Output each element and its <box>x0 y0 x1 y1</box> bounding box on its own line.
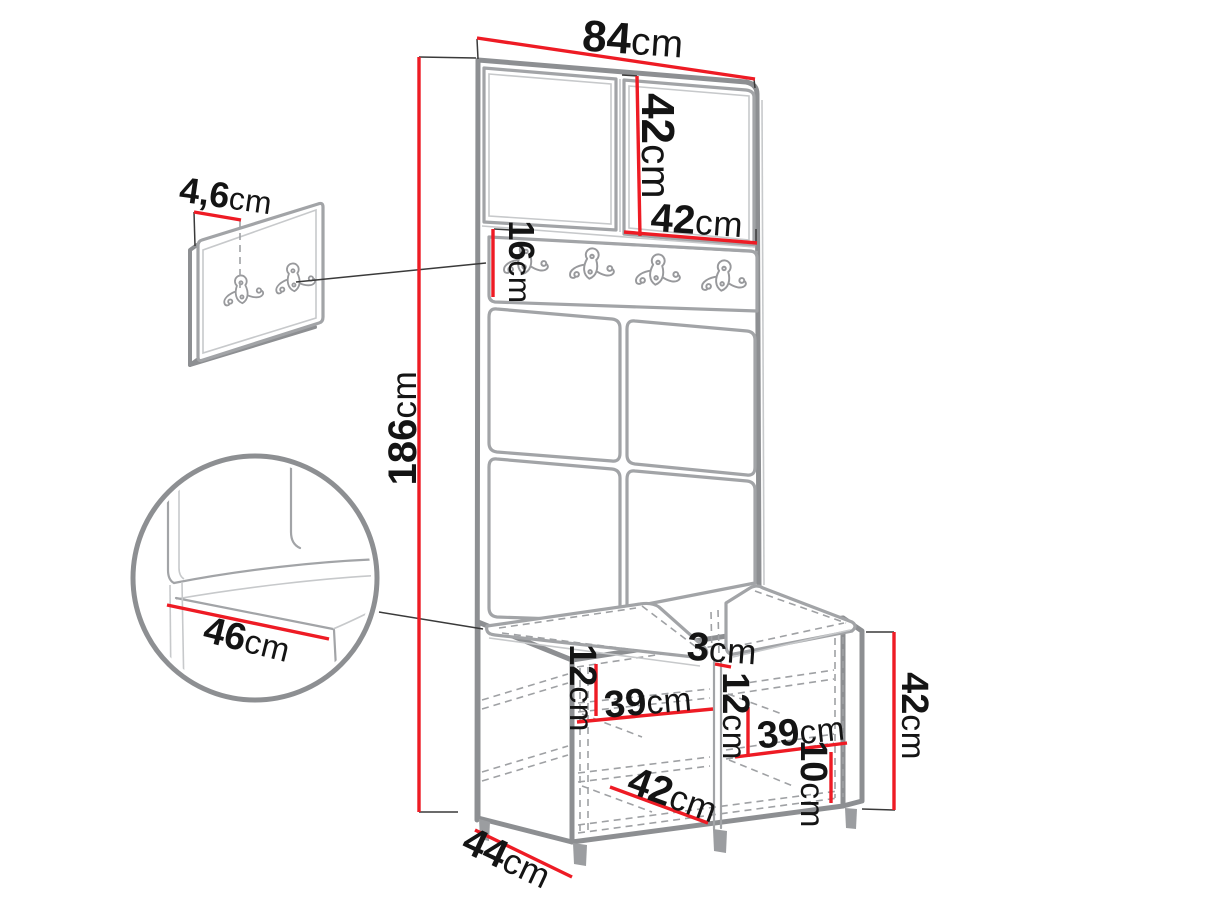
dim-total-height: 186cm <box>383 371 423 486</box>
dim-hook-rail-height: 16cm <box>503 220 539 303</box>
diagram-canvas: 84cm 42cm 42cm 4,6cm 16cm 186cm 46cm 3cm… <box>0 0 1214 911</box>
dim-right-compartment-height: 12cm <box>716 672 754 760</box>
dim-top-cabinet-height: 42cm <box>635 93 681 199</box>
seat-corner-detail-circle <box>133 456 386 706</box>
dim-left-compartment-height: 12cm <box>563 644 601 732</box>
dim-bench-height: 42cm <box>895 672 933 760</box>
dim-top-cabinet-width: 42cm <box>650 198 745 244</box>
furniture-line-drawing <box>0 0 1214 911</box>
wall-panel-detail <box>190 203 323 365</box>
dim-left-compartment-width: 39cm <box>603 679 694 725</box>
upholstered-panels <box>489 309 755 621</box>
dim-bottom-compartment-height: 10cm <box>794 740 832 828</box>
dim-overall-width: 84cm <box>581 15 685 66</box>
dim-center-divider: 3cm <box>686 627 759 672</box>
